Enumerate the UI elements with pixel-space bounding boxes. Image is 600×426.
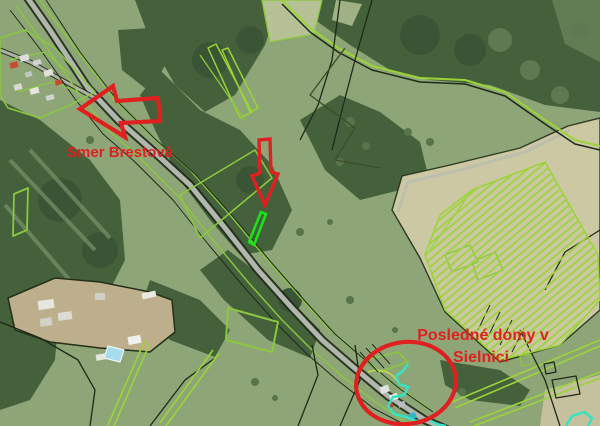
- direction-label: Smer Brestová: [67, 144, 174, 161]
- houses-label-line2: Sielnici: [453, 349, 509, 366]
- aerial-cadastral-map[interactable]: Smer Brestová Posledné domy v Sielnici: [0, 0, 600, 426]
- map-screenshot: Smer Brestová Posledné domy v Sielnici: [0, 0, 600, 426]
- houses-label-line1: Posledné domy v: [417, 327, 549, 344]
